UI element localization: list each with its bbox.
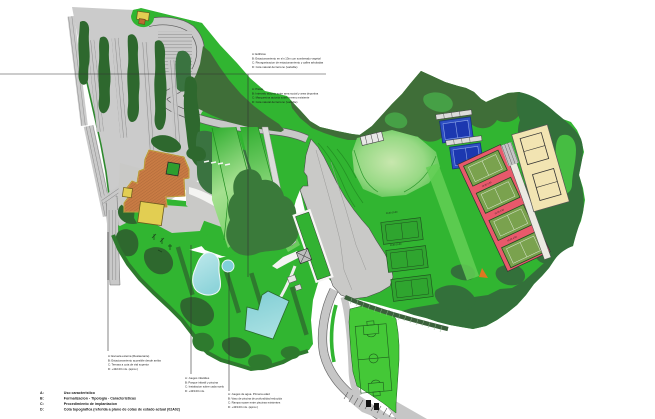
svg-text:D: +433.00 mts.: D: +433.00 mts.	[185, 389, 205, 393]
svg-text:B: Estacionamiento en s/n 13m: B: Estacionamiento en s/n 13m con sombre…	[252, 56, 321, 60]
svg-text:Uso caracteristico: Uso caracteristico	[64, 391, 96, 395]
svg-text:A: Pistas: A: Pistas	[252, 87, 264, 91]
svg-text:B: Intervalo autovia entre ar: B: Intervalo autovia entre area social y…	[252, 91, 319, 95]
svg-text:A:: A:	[40, 391, 44, 395]
svg-text:C: Terraza a cota de vial sup: C: Terraza a cota de vial superior	[108, 363, 149, 367]
svg-text:C:: C:	[40, 402, 44, 406]
svg-text:D: Cota natural del terreno (: D: Cota natural del terreno (variable)	[252, 100, 297, 104]
svg-text:Formalizacion - Tipologia - Ca: Formalizacion - Tipologia - Caracteristi…	[64, 397, 136, 401]
svg-text:A: Edificios: A: Edificios	[252, 52, 266, 56]
svg-text:C: Reorganizacion de estacion: C: Reorganizacion de estacionamiento y c…	[252, 61, 324, 65]
svg-text:D:: D:	[40, 408, 44, 412]
svg-text:A: Escuela externa (Restauran: A: Escuela externa (Restaurante)	[108, 354, 149, 358]
svg-text:A: Juegos de agua. Primera ed: A: Juegos de agua. Primera edad	[228, 392, 270, 396]
svg-text:D: Cota natural del terreno (: D: Cota natural del terreno (variable)	[252, 65, 297, 69]
svg-text:C: Rampa suave entre piscinas: C: Rampa suave entre piscinas existentes	[228, 401, 281, 405]
svg-text:D: +432.00 mts. (aprox.): D: +432.00 mts. (aprox.)	[108, 367, 138, 371]
svg-text:B: Estacionamiento accesible: B: Estacionamiento accesible desde arrib…	[108, 358, 161, 362]
svg-text:B: Parque infantil y piscina: B: Parque infantil y piscina	[185, 380, 218, 384]
svg-text:C: Instalacion sobre cada sue: C: Instalacion sobre cada suelo	[185, 385, 224, 389]
svg-text:B: Vaso de piscina de profund: B: Vaso de piscina de profundidad reduci…	[228, 396, 282, 400]
svg-text:B:: B:	[40, 397, 44, 401]
svg-text:Procedimiento de implantacion: Procedimiento de implantacion	[64, 402, 117, 406]
svg-text:A: Juegos infantiles: A: Juegos infantiles	[185, 376, 210, 380]
svg-text:D: +433.00 mts. (aprox.): D: +433.00 mts. (aprox.)	[228, 405, 258, 409]
svg-text:C: Marquesina autovia sobre t: C: Marquesina autovia sobre terreno exis…	[252, 96, 310, 100]
svg-text:Cota topografica (referida a p: Cota topografica (referida a plano de co…	[64, 408, 181, 412]
